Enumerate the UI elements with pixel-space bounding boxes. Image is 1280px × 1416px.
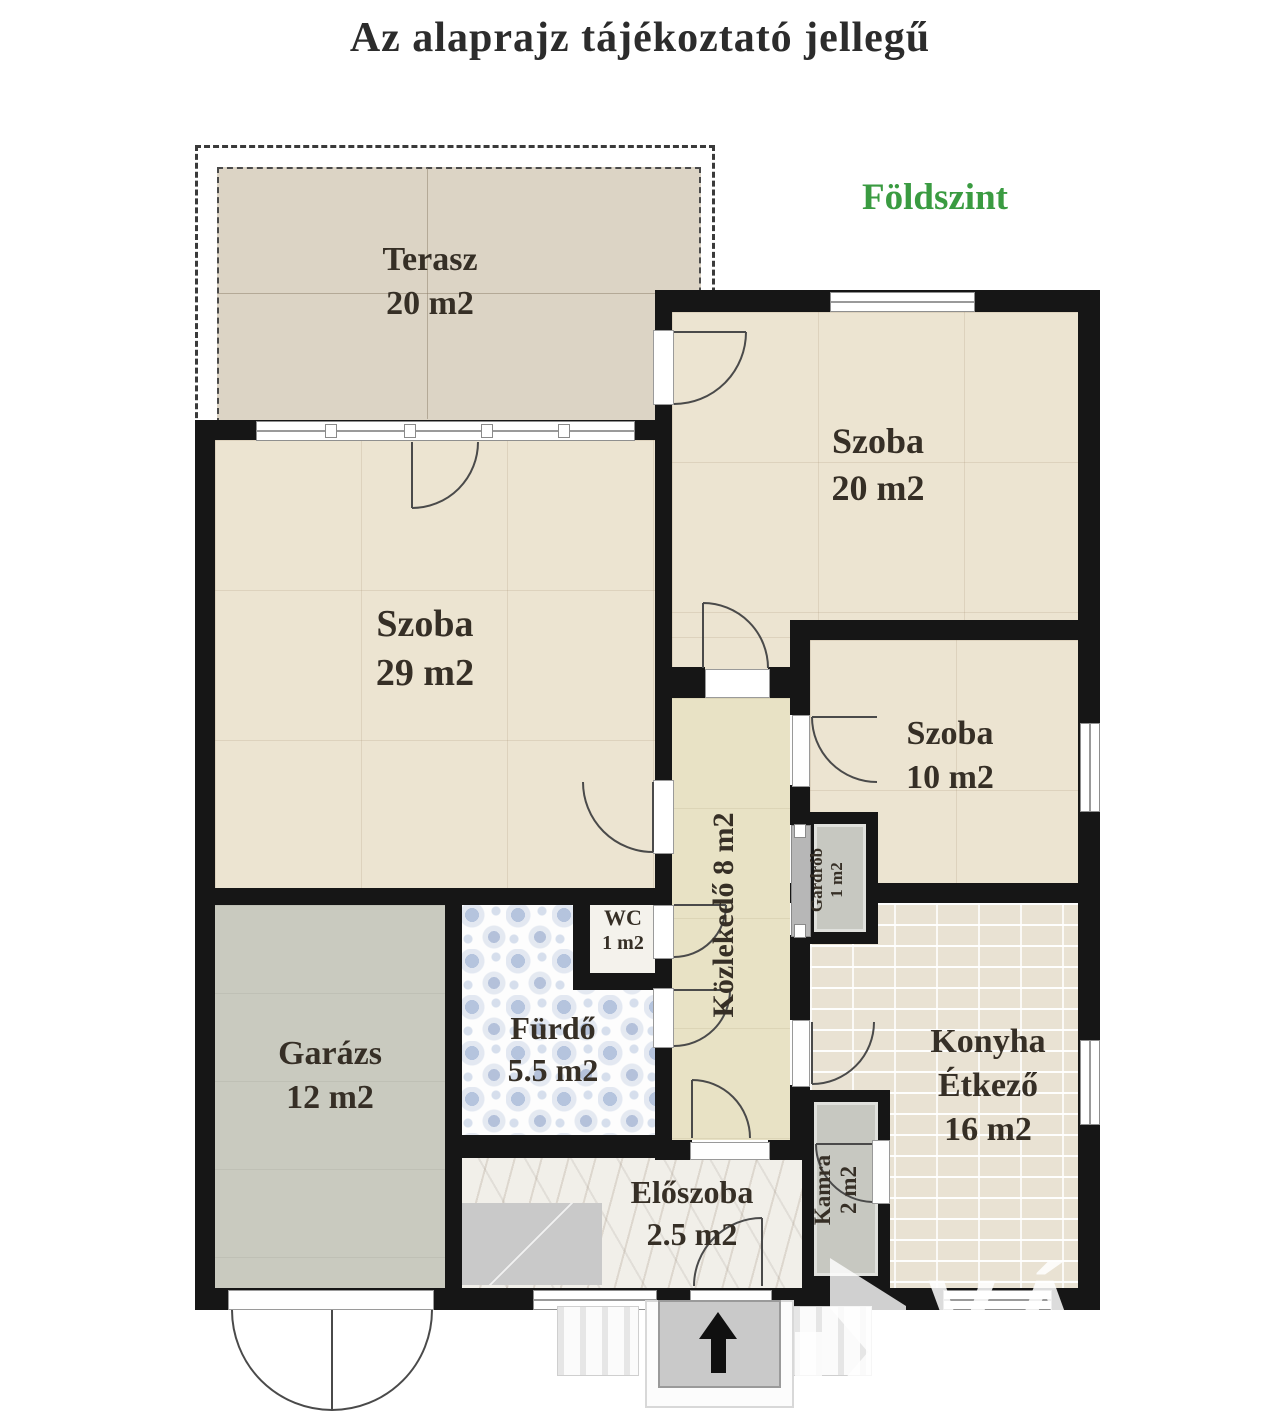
room-label-garazs: Garázs 12 m2 xyxy=(180,1032,480,1120)
window xyxy=(256,421,635,441)
door-opening xyxy=(653,330,674,405)
entrance-arrow-head xyxy=(699,1312,737,1339)
door-opening xyxy=(690,1142,770,1160)
wall xyxy=(672,667,705,698)
floor-plan-canvas: Az alaprajz tájékoztató jellegű Földszin… xyxy=(0,0,1280,1416)
window-joint xyxy=(404,424,416,438)
wall xyxy=(445,1135,672,1158)
wall xyxy=(790,620,1078,640)
door-joint xyxy=(794,824,806,838)
door-opening xyxy=(653,780,674,854)
door-opening xyxy=(705,669,770,698)
entrance-arrow-icon xyxy=(699,1312,737,1376)
entrance-arrow-stem xyxy=(711,1339,726,1373)
window-joint xyxy=(558,424,570,438)
room-label-szoba-29: Szoba 29 m2 xyxy=(275,600,575,699)
door-opening xyxy=(792,1020,810,1087)
room-label-eloszoba: Előszoba 2.5 m2 xyxy=(542,1172,842,1255)
room-label-kozlekedo: Közlekedő 8 m2 xyxy=(707,695,751,1135)
wall xyxy=(655,957,672,990)
exterior-steps xyxy=(557,1306,639,1376)
floor-level-label: Földszint xyxy=(785,176,1085,219)
wall xyxy=(195,420,215,1310)
wall xyxy=(655,403,672,780)
window-joint xyxy=(325,424,337,438)
room-floor-szoba-20-arm xyxy=(672,637,790,670)
room-label-konyha: Konyha Étkező 16 m2 xyxy=(838,1020,1138,1153)
room-label-szoba-10: Szoba 10 m2 xyxy=(800,712,1100,800)
wall xyxy=(195,888,672,905)
wall xyxy=(768,667,810,698)
exterior-steps xyxy=(793,1306,872,1376)
garage-door-opening xyxy=(228,1290,434,1310)
room-label-gardrob: Gardrób 1 m2 xyxy=(807,805,865,955)
door-joint xyxy=(794,924,806,938)
room-label-szoba-20: Szoba 20 m2 xyxy=(728,418,1028,512)
room-label-wc: WC 1 m2 xyxy=(580,905,666,955)
room-label-terasz: Terasz 20 m2 xyxy=(280,238,580,326)
window xyxy=(830,292,975,312)
window-joint xyxy=(481,424,493,438)
watermark-text: VÁRO xyxy=(928,1258,1271,1375)
plan-disclaimer-title: Az alaprajz tájékoztató jellegű xyxy=(0,14,1280,62)
wall xyxy=(672,1140,692,1160)
